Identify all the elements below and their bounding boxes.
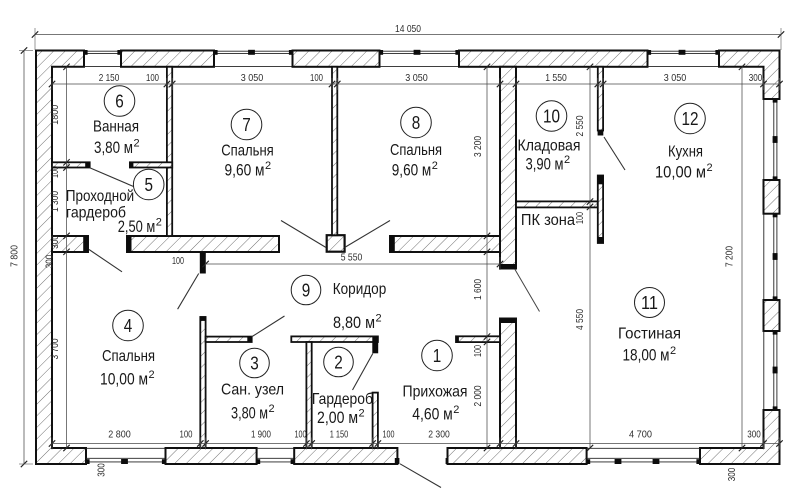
svg-text:10,00 м: 10,00 м	[655, 163, 706, 182]
svg-text:100: 100	[574, 212, 586, 224]
svg-text:Гостиная: Гостиная	[618, 326, 681, 343]
svg-text:100: 100	[472, 345, 484, 357]
svg-text:10: 10	[543, 106, 560, 126]
svg-text:9: 9	[302, 280, 311, 300]
svg-text:Проходной: Проходной	[66, 188, 134, 205]
svg-text:Спальня: Спальня	[221, 143, 274, 160]
svg-text:100: 100	[310, 72, 323, 84]
svg-text:2 550: 2 550	[574, 115, 586, 136]
svg-text:2 300: 2 300	[428, 429, 450, 441]
svg-text:100: 100	[383, 429, 395, 441]
svg-text:3 050: 3 050	[664, 72, 687, 84]
svg-text:2: 2	[269, 403, 275, 415]
svg-text:2: 2	[564, 154, 570, 166]
svg-text:3 050: 3 050	[405, 72, 428, 84]
svg-text:2: 2	[265, 160, 271, 172]
svg-text:4: 4	[124, 316, 133, 336]
svg-text:7 200: 7 200	[724, 246, 736, 267]
svg-text:3,90 м: 3,90 м	[526, 155, 564, 174]
svg-text:2: 2	[432, 160, 438, 172]
svg-text:Кладовая: Кладовая	[518, 137, 581, 154]
svg-text:300: 300	[96, 463, 108, 477]
svg-text:2: 2	[134, 138, 140, 150]
svg-text:2 150: 2 150	[99, 72, 120, 84]
svg-text:3 200: 3 200	[472, 136, 484, 157]
svg-text:3,80 м: 3,80 м	[231, 404, 268, 423]
svg-text:3: 3	[250, 353, 259, 373]
svg-text:1 600: 1 600	[472, 279, 484, 300]
svg-text:2 800: 2 800	[108, 429, 131, 441]
svg-text:300: 300	[726, 468, 738, 482]
svg-text:1 900: 1 900	[251, 429, 271, 441]
svg-text:Гардероб: Гардероб	[312, 391, 373, 408]
svg-text:2: 2	[359, 408, 365, 420]
svg-text:3,80 м: 3,80 м	[94, 138, 133, 157]
svg-text:4 550: 4 550	[574, 309, 586, 330]
svg-text:2 000: 2 000	[472, 385, 484, 406]
svg-text:100: 100	[295, 429, 307, 441]
svg-text:300: 300	[49, 235, 61, 249]
svg-text:ПК зона: ПК зона	[521, 212, 575, 229]
svg-text:Прихожая: Прихожая	[403, 384, 468, 401]
svg-text:Кухня: Кухня	[668, 144, 703, 161]
svg-text:1800: 1800	[49, 105, 61, 125]
svg-text:100: 100	[172, 255, 184, 267]
svg-text:Сан. узел: Сан. узел	[221, 382, 284, 399]
svg-text:4 700: 4 700	[629, 429, 652, 441]
svg-text:11: 11	[641, 293, 658, 313]
svg-text:1 550: 1 550	[545, 72, 567, 84]
svg-text:100: 100	[49, 166, 61, 178]
svg-text:300: 300	[749, 72, 763, 84]
svg-text:300: 300	[44, 255, 56, 269]
svg-text:12: 12	[682, 109, 699, 129]
svg-text:Спальня: Спальня	[390, 142, 442, 159]
svg-text:2: 2	[156, 217, 162, 229]
svg-text:2,50 м: 2,50 м	[118, 217, 156, 236]
svg-text:Коридор: Коридор	[333, 281, 387, 298]
svg-text:1 300: 1 300	[49, 191, 61, 212]
svg-text:7 800: 7 800	[9, 245, 21, 267]
svg-text:Спальня: Спальня	[102, 348, 155, 365]
svg-text:Ванная: Ванная	[93, 119, 139, 136]
svg-text:10,00 м: 10,00 м	[100, 370, 148, 389]
svg-text:8: 8	[412, 113, 421, 133]
svg-text:14 050: 14 050	[395, 23, 421, 35]
svg-text:2,00 м: 2,00 м	[317, 408, 358, 427]
svg-text:2: 2	[149, 369, 155, 381]
svg-text:1 150: 1 150	[330, 429, 349, 441]
svg-text:8,80 м: 8,80 м	[333, 313, 375, 332]
svg-text:4,60 м: 4,60 м	[412, 405, 453, 424]
svg-text:2: 2	[376, 313, 382, 325]
svg-text:2: 2	[707, 162, 713, 174]
svg-text:9,60 м: 9,60 м	[225, 161, 265, 180]
svg-text:100: 100	[146, 72, 159, 84]
svg-text:18,00 м: 18,00 м	[623, 346, 670, 365]
svg-text:1: 1	[433, 346, 442, 366]
svg-text:2: 2	[670, 345, 676, 357]
svg-text:300: 300	[747, 429, 761, 441]
svg-text:6: 6	[115, 91, 124, 111]
svg-text:3 700: 3 700	[49, 338, 61, 359]
svg-text:7: 7	[242, 115, 251, 135]
svg-text:2: 2	[453, 404, 459, 416]
svg-text:100: 100	[180, 429, 193, 441]
svg-text:5 550: 5 550	[341, 252, 363, 264]
svg-text:2: 2	[334, 352, 343, 372]
svg-text:5: 5	[144, 175, 153, 195]
svg-text:3 050: 3 050	[241, 72, 264, 84]
svg-text:9,60 м: 9,60 м	[392, 161, 432, 180]
